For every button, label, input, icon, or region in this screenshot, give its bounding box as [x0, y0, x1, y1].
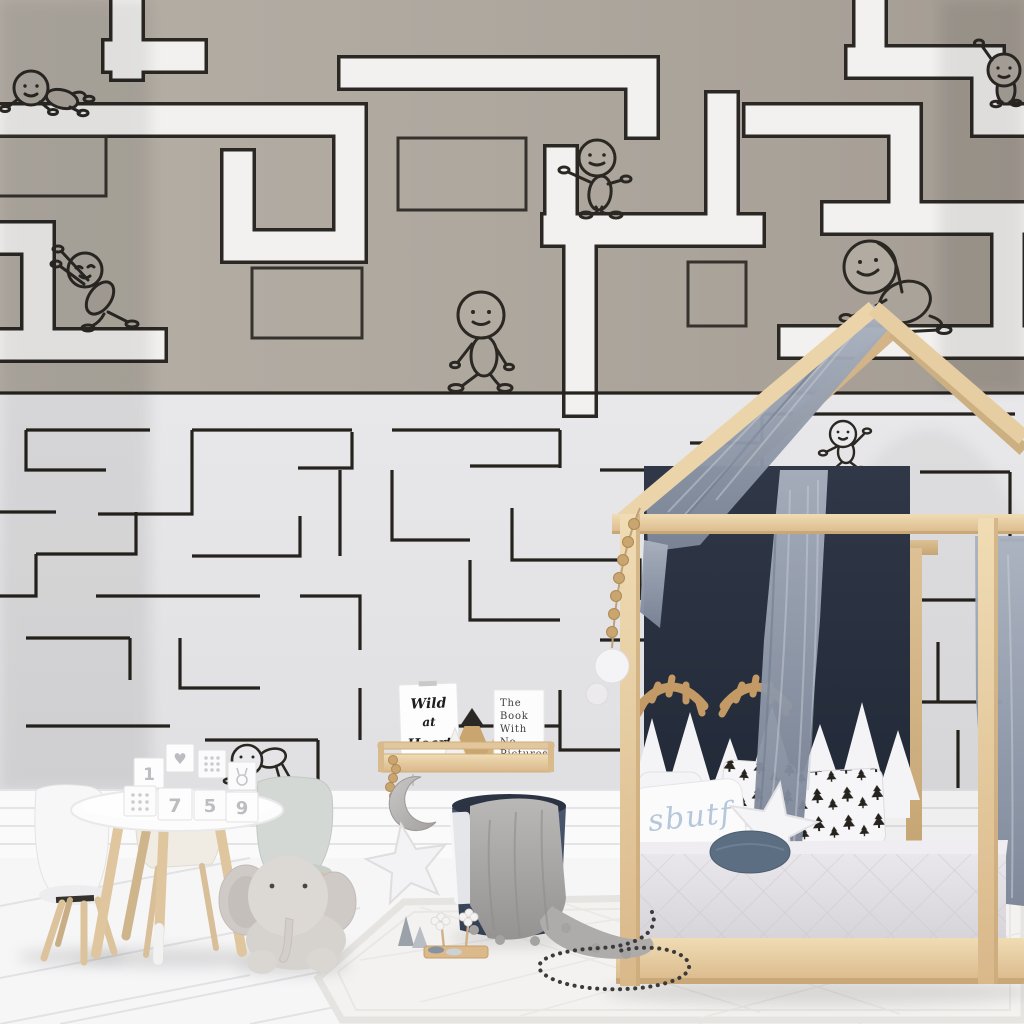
bed-base-rail [616, 938, 1024, 984]
shelf-board [380, 754, 552, 772]
bed-mattress [630, 831, 1008, 946]
toy-block-7: 7 [158, 788, 192, 820]
shelf-front-rail [378, 742, 554, 749]
svg-text:9: 9 [236, 798, 249, 819]
toy-block-heart: ♥ [166, 744, 194, 772]
wall-shade-left [0, 0, 150, 790]
toy-block-9: 9 [226, 792, 258, 822]
wall-shade-right [940, 0, 1024, 392]
toy-block-bunny [228, 762, 256, 790]
toy-block-1: 1 [134, 758, 164, 788]
book-line-2: Book [500, 711, 529, 722]
svg-text:7: 7 [168, 795, 181, 817]
book-line-3: With [500, 724, 527, 735]
room-illustration: sbutf Wild [0, 0, 1024, 1024]
svg-text:♥: ♥ [173, 750, 186, 768]
svg-text:1: 1 [143, 765, 155, 785]
toy-block-5: 5 [194, 790, 226, 820]
card-line-1: Wild [410, 695, 447, 712]
card-line-2: at [422, 715, 436, 729]
pillow-round-denim [710, 831, 790, 873]
toy-block-dots-b [124, 786, 156, 816]
kids-room-photo: sbutf Wild [0, 0, 1024, 1024]
book-line-1: The [500, 698, 521, 709]
toy-block-dots-a [198, 750, 226, 778]
svg-text:5: 5 [204, 796, 217, 817]
